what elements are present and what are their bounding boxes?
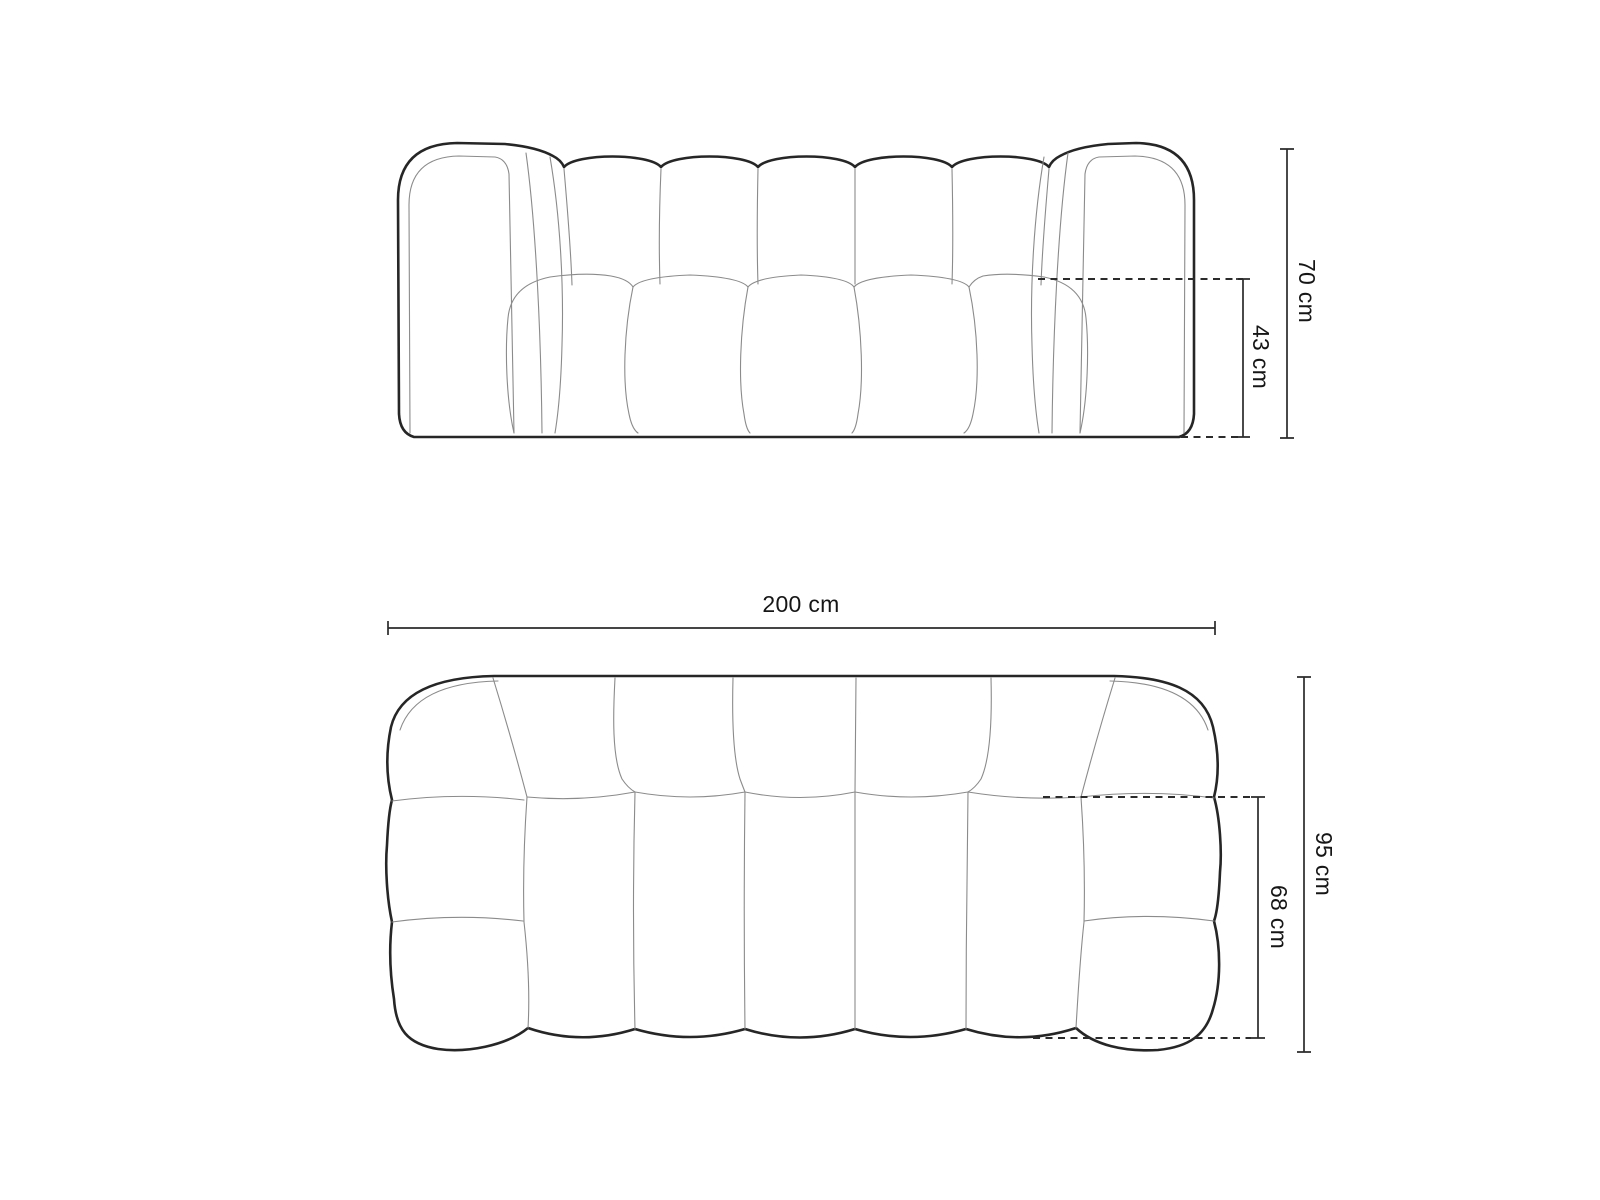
- dimension-seat-height: 43 cm: [1038, 279, 1274, 437]
- seat-separator-seam: [852, 287, 861, 433]
- top-outer-outline: [386, 676, 1221, 1050]
- top-seat-channel-seam: [634, 792, 636, 1029]
- seat-cushion-1-outline: [506, 274, 633, 433]
- front-right-arm-inner-contour: [1080, 156, 1185, 433]
- front-view-outline: [398, 143, 1194, 437]
- top-seat-channel-seam: [966, 792, 968, 1029]
- front-right-arm-back-curve-2: [1032, 157, 1045, 433]
- seat-separator-seam: [625, 287, 638, 433]
- top-back-cushion-front-wave: [527, 792, 1081, 799]
- top-back-cushion-seams: [527, 678, 1081, 799]
- top-right-arm-inner-edge: [1081, 797, 1084, 922]
- dimension-overall-width: 200 cm: [388, 591, 1215, 635]
- front-seat-cushions: [506, 274, 1087, 433]
- overall-depth-dimension-line: [1297, 677, 1311, 1052]
- seat-height-dimension-line: [1236, 279, 1250, 437]
- top-back-channel-seam: [968, 678, 991, 792]
- seat-height-label: 43 cm: [1248, 325, 1274, 389]
- top-seat-channel-seams: [634, 792, 969, 1029]
- front-right-arm-detail: [1032, 153, 1186, 433]
- seat-cushion-2-top: [633, 275, 748, 287]
- overall-height-dimension-line: [1280, 149, 1294, 438]
- seat-separator-seam: [741, 287, 750, 433]
- seat-cushion-3-top: [748, 275, 854, 287]
- top-seat-channel-seam: [744, 792, 745, 1029]
- front-left-arm-detail: [409, 153, 563, 433]
- front-left-arm-back-curve-2: [550, 157, 563, 433]
- top-left-arm-divider-seam: [392, 917, 523, 922]
- top-left-arm-inner-edge: [524, 797, 527, 922]
- top-view: [386, 676, 1221, 1050]
- seat-depth-dimension-line: [1251, 797, 1265, 1038]
- seat-separator-seam: [964, 287, 977, 433]
- back-channel-seam: [757, 169, 758, 284]
- seat-cushion-5-outline: [969, 274, 1088, 433]
- top-right-arm-inner-edge-lower: [1076, 922, 1084, 1028]
- top-left-corner-inner-line: [400, 681, 498, 730]
- front-back-channel-lines: [564, 169, 1049, 285]
- sofa-dimension-spec-sheet: 70 cm 43 cm 200 cm 95 cm 68 cm: [0, 0, 1600, 1200]
- seat-depth-label: 68 cm: [1266, 885, 1292, 949]
- top-right-arm-junction-curve: [1081, 678, 1115, 797]
- front-outer-outline: [398, 143, 1194, 437]
- top-back-channel-seam: [614, 678, 635, 792]
- back-channel-seam: [564, 169, 572, 285]
- top-right-arm-detail: [1076, 678, 1214, 1028]
- top-back-channel-seam: [855, 678, 856, 792]
- sofa-dimension-diagram: 70 cm 43 cm 200 cm 95 cm 68 cm: [0, 0, 1600, 1200]
- top-view-outline: [386, 676, 1221, 1050]
- front-view: [398, 143, 1194, 437]
- top-left-arm-junction-curve: [493, 678, 527, 797]
- back-channel-seam: [659, 169, 661, 284]
- overall-width-label: 200 cm: [762, 591, 839, 617]
- top-back-channel-seam: [733, 678, 745, 792]
- front-left-arm-back-curve-1: [526, 153, 542, 433]
- dimension-overall-depth: 95 cm: [1297, 677, 1337, 1052]
- top-left-arm-inner-edge-lower: [524, 922, 529, 1028]
- front-left-arm-inner-contour: [409, 156, 514, 433]
- overall-depth-label: 95 cm: [1311, 832, 1337, 896]
- top-right-arm-divider-seam: [1084, 917, 1214, 922]
- top-left-arm-detail: [392, 678, 529, 1028]
- overall-width-dimension-line: [388, 621, 1215, 635]
- dimension-seat-depth: 68 cm: [1033, 797, 1292, 1038]
- back-channel-seam: [952, 169, 953, 284]
- front-right-arm-back-curve-1: [1052, 153, 1068, 433]
- back-channel-seam: [1041, 169, 1049, 285]
- top-right-corner-inner-line: [1110, 681, 1208, 730]
- dimension-overall-height: 70 cm: [1280, 149, 1320, 438]
- overall-height-label: 70 cm: [1294, 259, 1320, 323]
- top-left-arm-divider-seam: [392, 796, 524, 801]
